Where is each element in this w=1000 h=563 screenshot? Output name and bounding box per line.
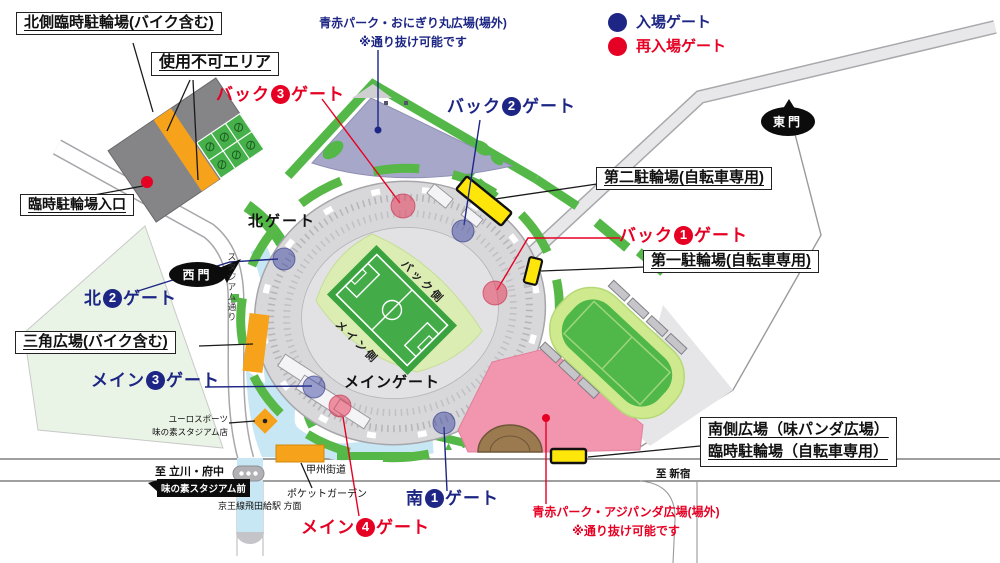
reentry-gate-dot-icon [608,37,627,56]
onigiri-plaza-dot [375,127,382,134]
legend-reentry-row: 再入場ゲート [608,37,726,56]
gate-back1-post: ゲート [694,226,748,246]
east-gate-oval: 東門 [761,107,815,136]
gate-north2-number: 2 [103,289,122,308]
triangle-plaza-label: 三角広場(バイク含む) [15,331,176,354]
map-graphics: バック側 メイン側 [0,0,1000,563]
gate-dot-main3 [303,376,325,398]
gate-back1-pre: バック [619,226,673,246]
gate-label-north2: 北2ゲート [84,289,177,309]
legend-reentry-label: 再入場ゲート [636,38,726,55]
pocket-garden-building [276,445,324,462]
to-shinjuku-label: 至 新宿 [656,468,690,480]
gate-north2-post: ゲート [123,289,177,309]
euro-sports-shop-label: ユーロスポーツ 味の素スタジアム店 [148,413,228,439]
south-plaza-line1: 南側広場（味パンダ広場） [708,419,889,441]
stadium-street-label: スタジアム通り [226,252,236,322]
gate-main3-post: ゲート [166,371,220,391]
ajipanda-plaza-dot [542,414,550,422]
gate-main3-number: 3 [146,371,165,390]
gate-back2-pre: バック [447,97,501,117]
ajipanda-plaza-label: 青赤パーク・アジパンダ広場(場外) ※通り抜け可能です [521,503,731,541]
temp-entrance-dot [141,176,153,188]
gate-back3-pre: バック [216,85,270,105]
gate-dot-back1 [483,281,507,305]
onigiri-plaza-line2: ※通り抜け可能です [308,33,518,52]
station-direction-label: 京王線飛田給駅 方面 [218,501,302,511]
gate-back2-number: 2 [502,97,521,116]
ajipanda-plaza-line2: ※通り抜け可能です [521,522,731,541]
onigiri-plaza-label: 青赤パーク・おにぎり丸広場(場外) ※通り抜け可能です [308,14,518,52]
gate-dot-main4 [329,395,351,417]
gate-back3-number: 3 [271,85,290,104]
gate-label-back2: バック2ゲート [447,97,576,117]
gate-back2-post: ゲート [522,97,576,117]
temp-entrance-label: 臨時駐輪場入口 [20,194,134,216]
shop-line2: 味の素スタジアム店 [148,426,228,439]
gate-main4-number: 4 [356,518,375,537]
gate-main4-pre: メイン [301,518,355,538]
south-plaza-label: 南側広場（味パンダ広場） 臨時駐輪場（自転車専用） [700,417,897,467]
gate-back1-number: 1 [674,226,693,245]
station-stop-badge: 味の素スタジアム前 [157,479,250,497]
ajipanda-plaza-line1: 青赤パーク・アジパンダ広場(場外) [521,503,731,522]
gate-south1-post: ゲート [445,489,499,509]
gate-label-main4: メイン4ゲート [301,518,430,538]
gate-south1-number: 1 [425,489,444,508]
stadium-map: バック側 メイン側 [0,0,1000,563]
gate-label-back1: バック1ゲート [619,226,748,246]
onigiri-plaza-line1: 青赤パーク・おにぎり丸広場(場外) [308,14,518,33]
entry-gate-dot-icon [608,13,627,32]
shop-line1: ユーロスポーツ [148,413,228,426]
bicycle1-label: 第一駐輪場(自転車専用) [643,250,819,273]
gate-dot-north2 [273,248,295,270]
gate-main4-post: ゲート [376,518,430,538]
south-bicycle-marker [551,449,586,463]
pocket-garden-label: ポケットガーデン [287,489,367,501]
to-tachikawa-label: 至 立川・府中 [155,466,224,479]
koshu-kaido-label: 甲州街道 [306,465,346,477]
main-gate-label: メインゲート [344,374,440,391]
gate-label-south1: 南1ゲート [406,489,499,509]
gate-dot-back3 [391,194,415,218]
south-plaza-line2: 臨時駐輪場（自転車専用） [708,441,889,463]
west-gate-oval: 西門 [169,262,226,287]
gate-south1-pre: 南 [406,489,424,509]
gate-label-main3: メイン3ゲート [91,371,220,391]
north-parking-label: 北側臨時駐輪場(バイク含む) [16,12,222,35]
unusable-area-label: 使用不可エリア [151,52,279,76]
bicycle2-label: 第二駐輪場(自転車専用) [596,167,772,190]
legend-entry-row: 入場ゲート [608,13,726,32]
gate-north2-pre: 北 [84,289,102,309]
gate-dot-back2 [452,220,474,242]
legend: 入場ゲート 再入場ゲート [608,13,726,61]
north-gate-label: 北ゲート [248,213,316,230]
gate-label-back3: バック3ゲート [216,85,345,105]
legend-entry-label: 入場ゲート [636,14,711,31]
gate-dot-south1 [433,412,455,434]
gate-back3-post: ゲート [291,85,345,105]
gate-main3-pre: メイン [91,371,145,391]
